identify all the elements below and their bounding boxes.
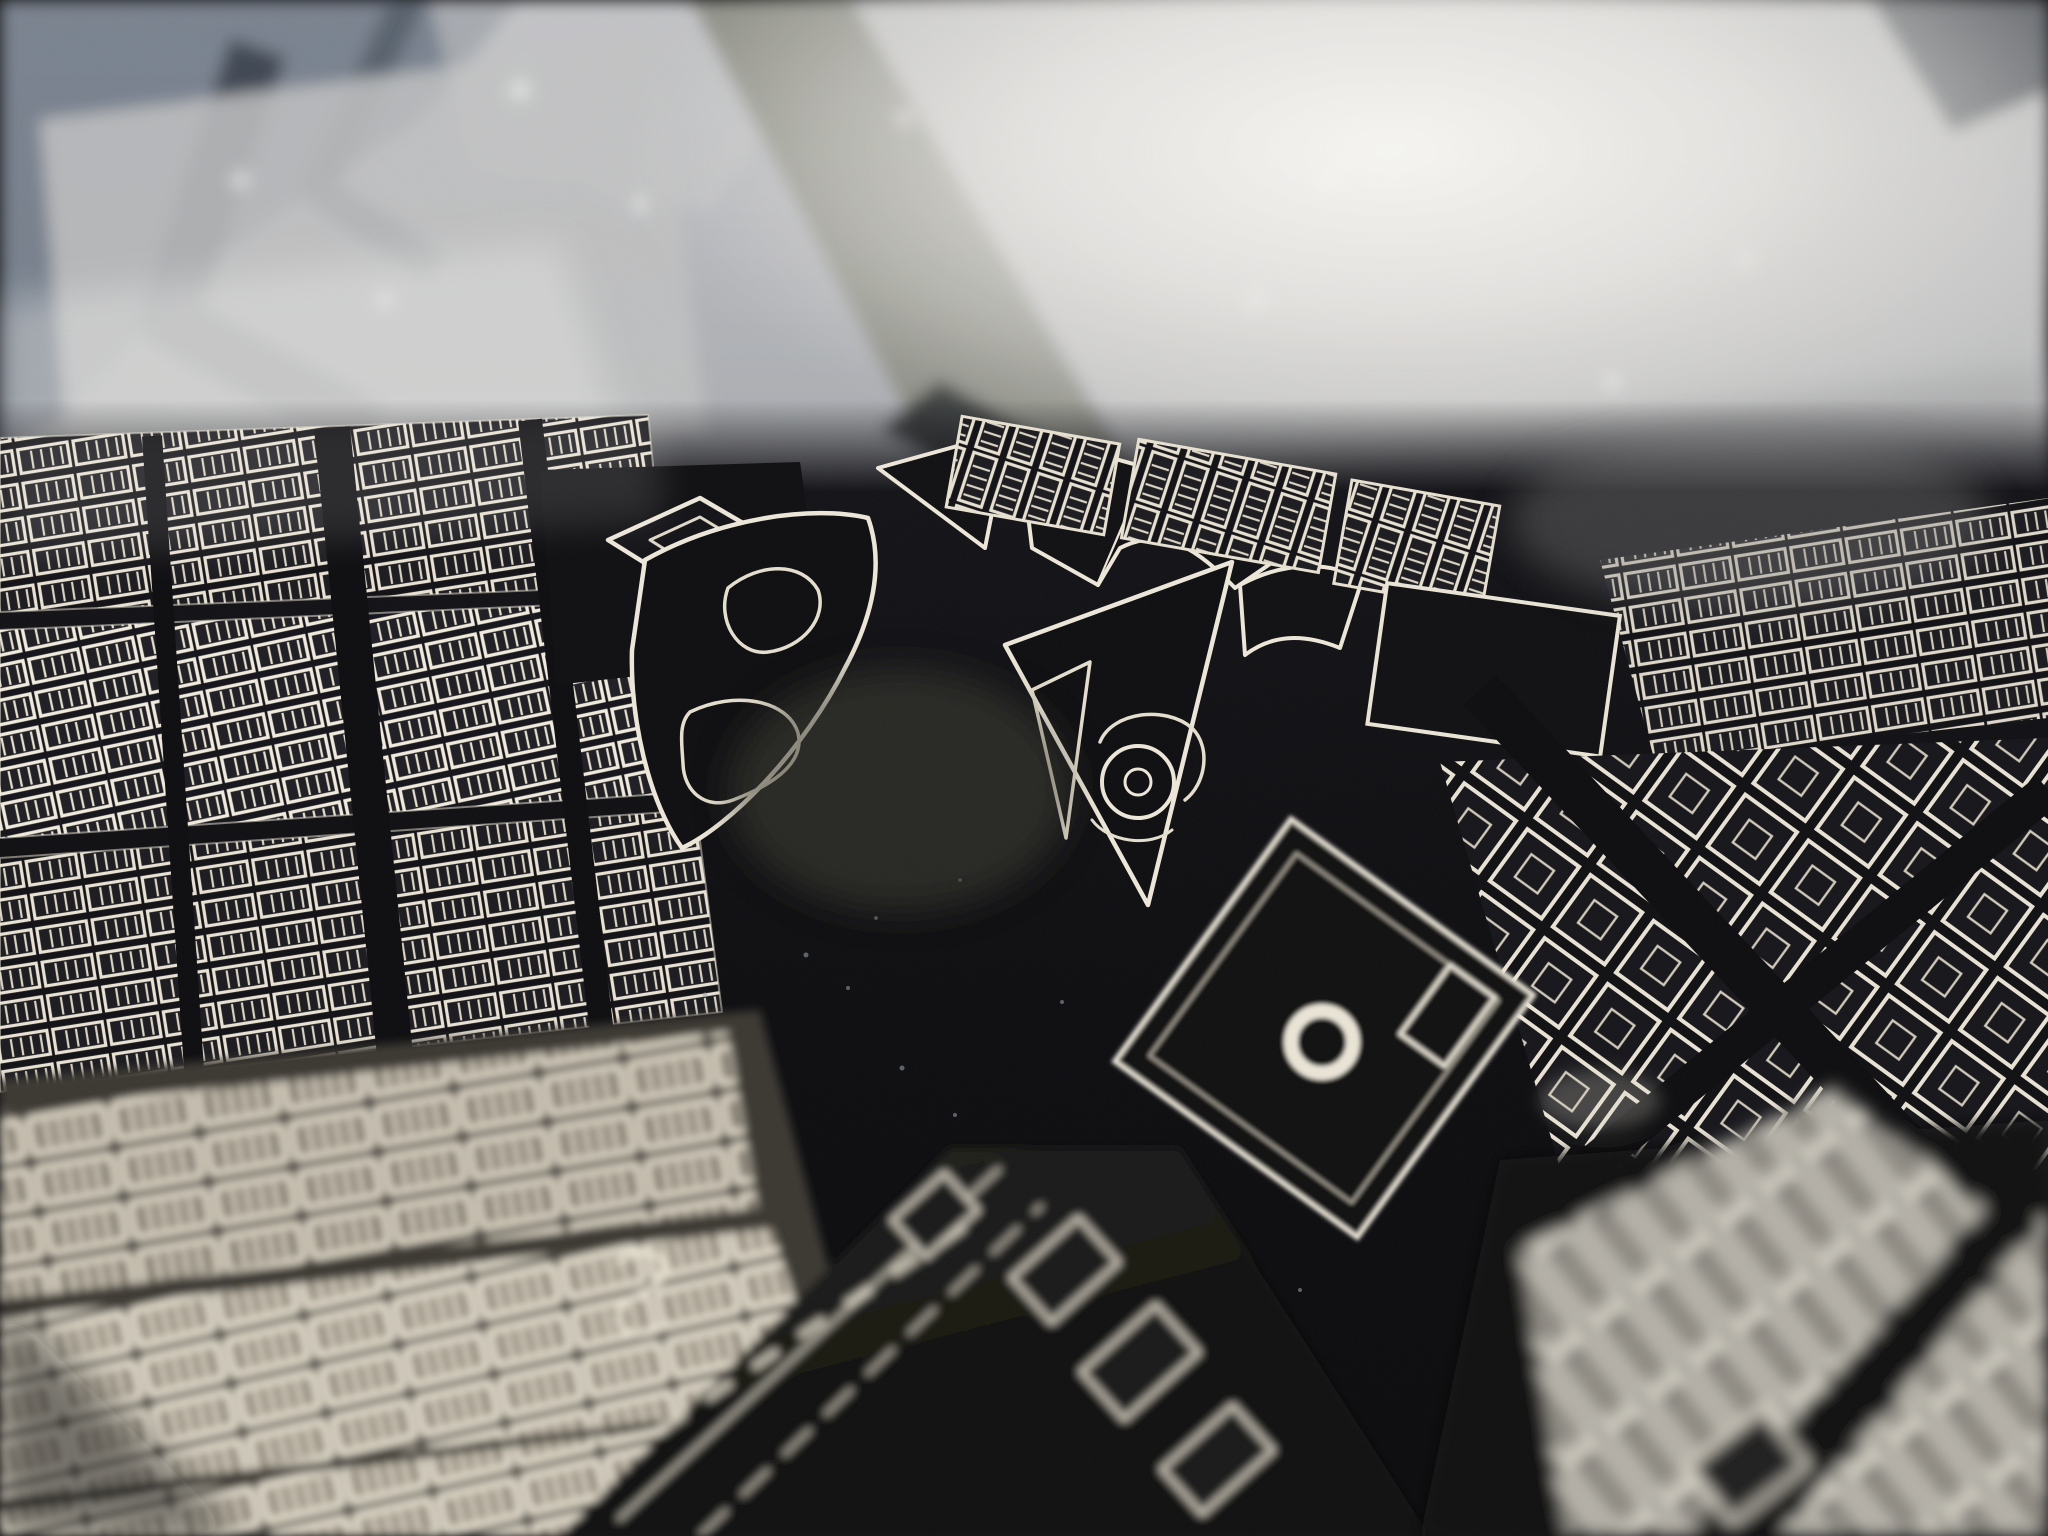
- film-grain: [0, 0, 2048, 1536]
- photo-stage: [0, 0, 2048, 1536]
- photo-canvas: [0, 0, 2048, 1536]
- metal-citymap-photo: [0, 0, 2048, 1536]
